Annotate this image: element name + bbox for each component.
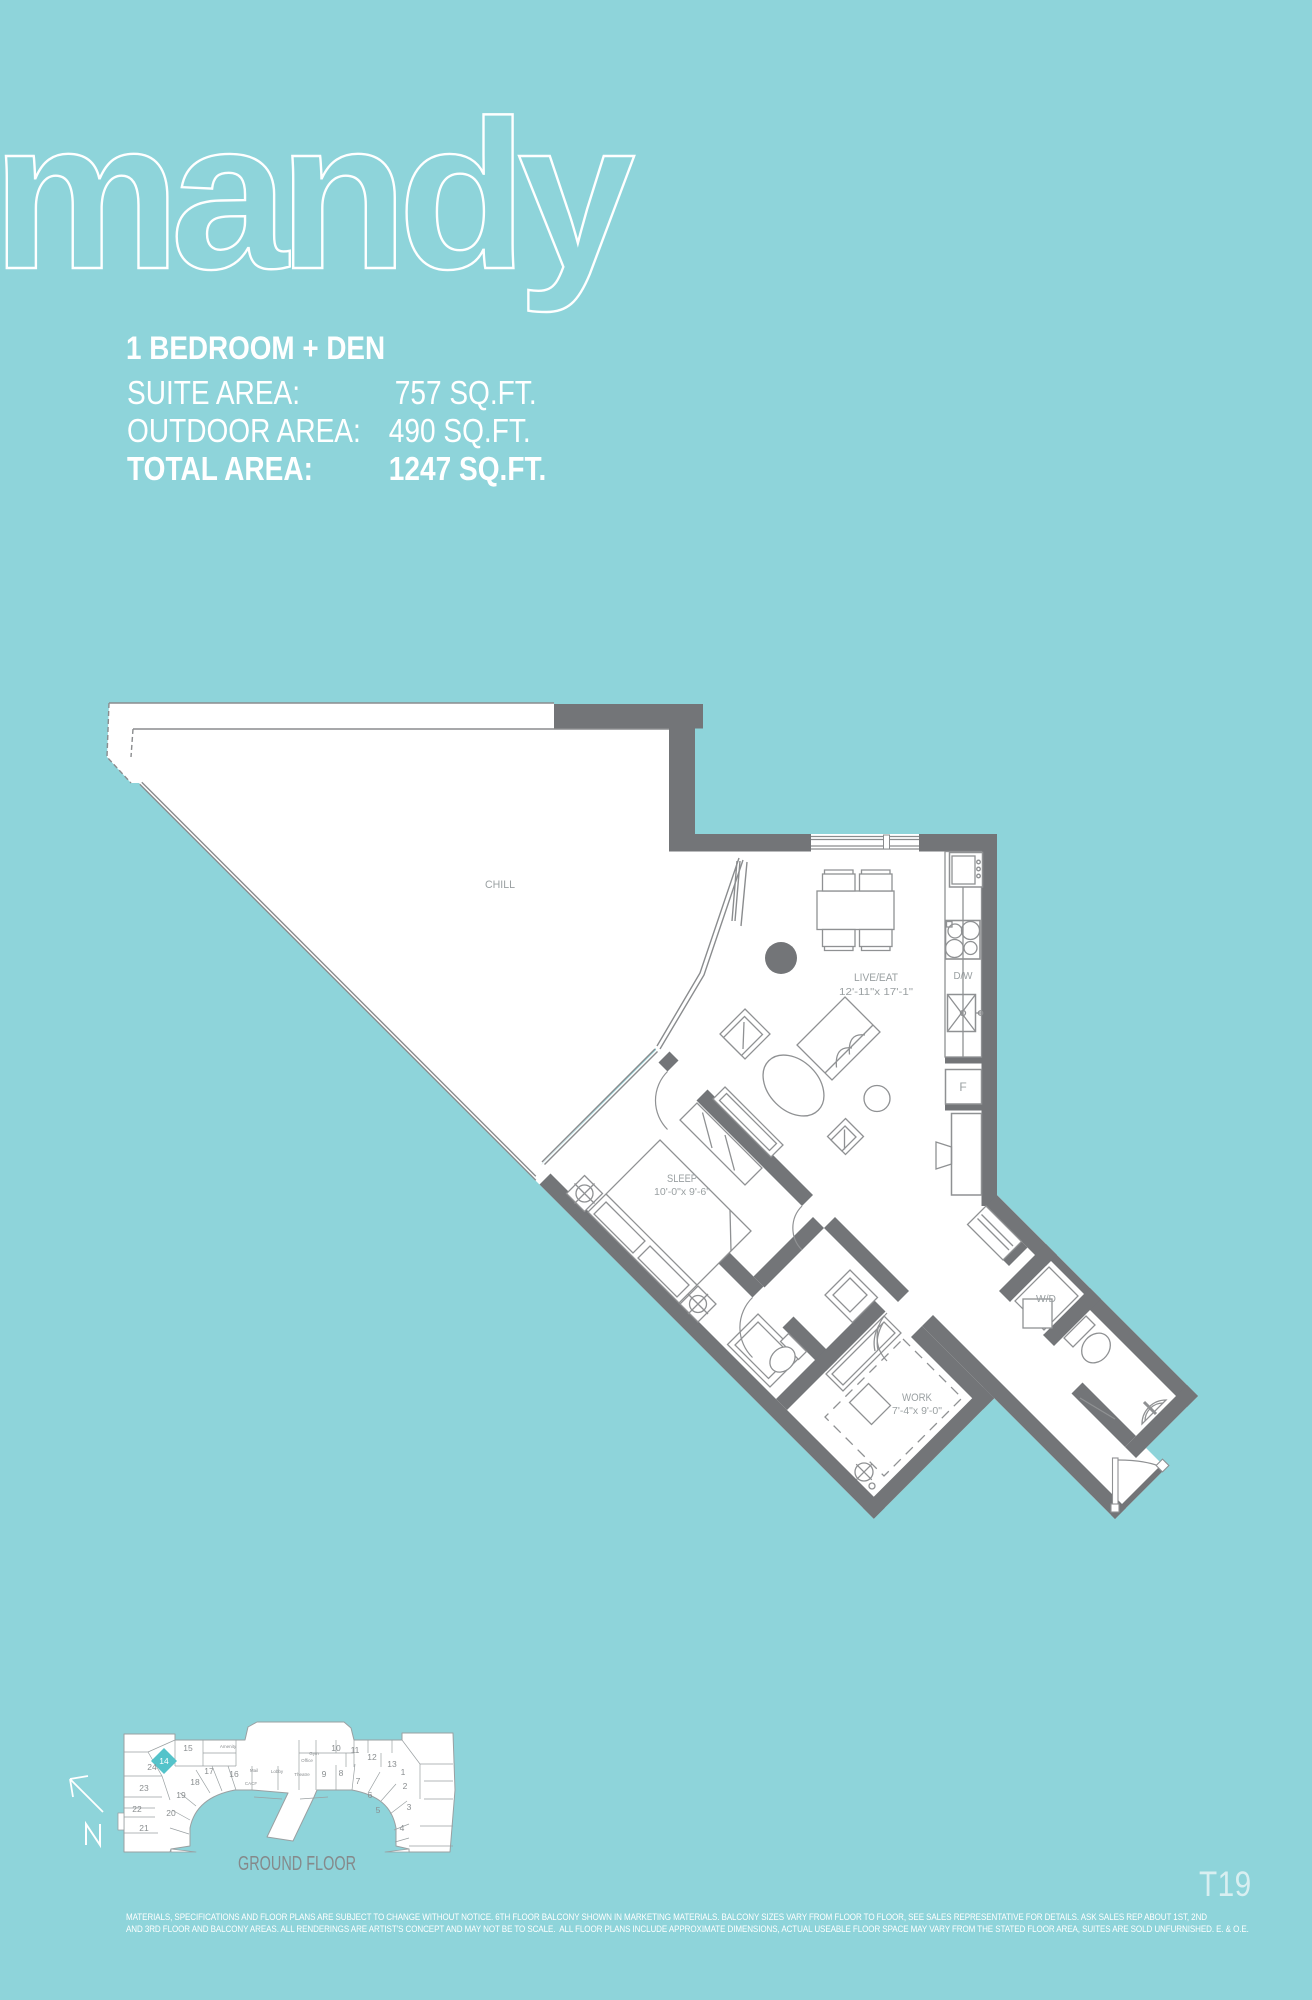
svg-text:11: 11 [351, 1745, 360, 1755]
svg-text:12: 12 [367, 1752, 377, 1762]
svg-text:8: 8 [339, 1768, 344, 1778]
svg-text:SLEEP: SLEEP [667, 1173, 697, 1185]
svg-text:F: F [959, 1080, 966, 1094]
svg-text:CHILL: CHILL [485, 879, 515, 891]
svg-text:18: 18 [190, 1777, 200, 1787]
svg-text:24: 24 [147, 1762, 157, 1772]
svg-text:21: 21 [139, 1823, 149, 1833]
svg-text:WORK: WORK [902, 1392, 933, 1404]
svg-text:W/D: W/D [1036, 1294, 1056, 1305]
svg-text:14: 14 [159, 1756, 169, 1766]
svg-text:Amenity: Amenity [220, 1744, 237, 1749]
svg-text:7: 7 [356, 1776, 361, 1786]
svg-text:16: 16 [229, 1769, 239, 1779]
svg-text:20: 20 [166, 1808, 176, 1818]
svg-text:LIVE/EAT: LIVE/EAT [854, 972, 898, 984]
svg-text:Office: Office [301, 1758, 313, 1763]
svg-text:CACF: CACF [245, 1781, 258, 1786]
svg-text:2: 2 [403, 1781, 408, 1791]
svg-text:6: 6 [368, 1790, 373, 1800]
svg-text:Theatre: Theatre [294, 1772, 310, 1777]
svg-text:9: 9 [322, 1769, 327, 1779]
svg-text:1: 1 [401, 1767, 406, 1777]
svg-text:15: 15 [183, 1743, 193, 1753]
svg-text:23: 23 [139, 1783, 149, 1793]
svg-text:Lobby: Lobby [271, 1769, 284, 1774]
svg-text:13: 13 [387, 1759, 397, 1769]
svg-text:3: 3 [407, 1802, 412, 1812]
svg-text:17: 17 [204, 1766, 214, 1776]
svg-text:4: 4 [400, 1823, 405, 1833]
svg-text:Mail: Mail [250, 1768, 258, 1773]
svg-text:19: 19 [176, 1790, 186, 1800]
svg-text:7'-4"x 9'-0": 7'-4"x 9'-0" [892, 1406, 942, 1417]
svg-text:10'-0"x 9'-6": 10'-0"x 9'-6" [654, 1187, 710, 1198]
svg-text:Gym: Gym [309, 1751, 319, 1756]
svg-text:D/W: D/W [954, 971, 974, 982]
svg-text:GROUND FLOOR: GROUND FLOOR [238, 1853, 356, 1875]
svg-text:5: 5 [376, 1805, 381, 1815]
svg-text:22: 22 [132, 1804, 142, 1814]
svg-text:10: 10 [331, 1743, 341, 1753]
svg-text:12'-11"x 17'-1": 12'-11"x 17'-1" [839, 987, 914, 998]
